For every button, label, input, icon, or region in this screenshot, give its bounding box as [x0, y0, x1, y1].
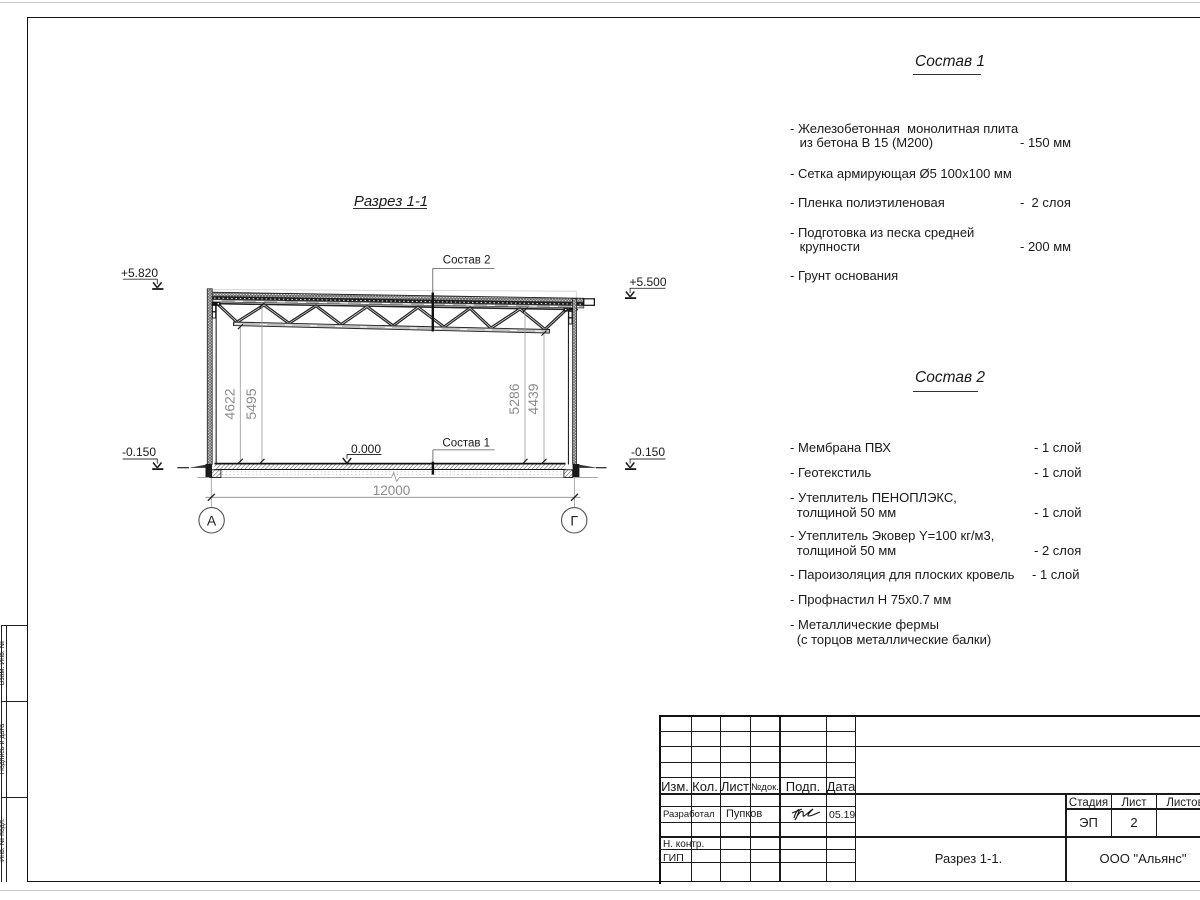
svg-text:Состав 2: Состав 2	[443, 254, 491, 266]
svg-text:А: А	[207, 512, 217, 528]
svg-text:-0.150: -0.150	[631, 445, 665, 459]
svg-text:Г: Г	[570, 512, 578, 528]
svg-text:5286: 5286	[506, 383, 522, 414]
svg-text:0.000: 0.000	[351, 442, 381, 456]
svg-text:5495: 5495	[243, 388, 259, 419]
svg-text:4439: 4439	[525, 383, 541, 414]
svg-text:Состав 1: Состав 1	[442, 437, 490, 449]
svg-text:12000: 12000	[373, 483, 411, 498]
svg-text:-0.150: -0.150	[122, 445, 156, 459]
svg-text:+5.820: +5.820	[121, 266, 158, 280]
svg-text:+5.500: +5.500	[629, 275, 666, 289]
svg-text:4622: 4622	[221, 388, 237, 419]
